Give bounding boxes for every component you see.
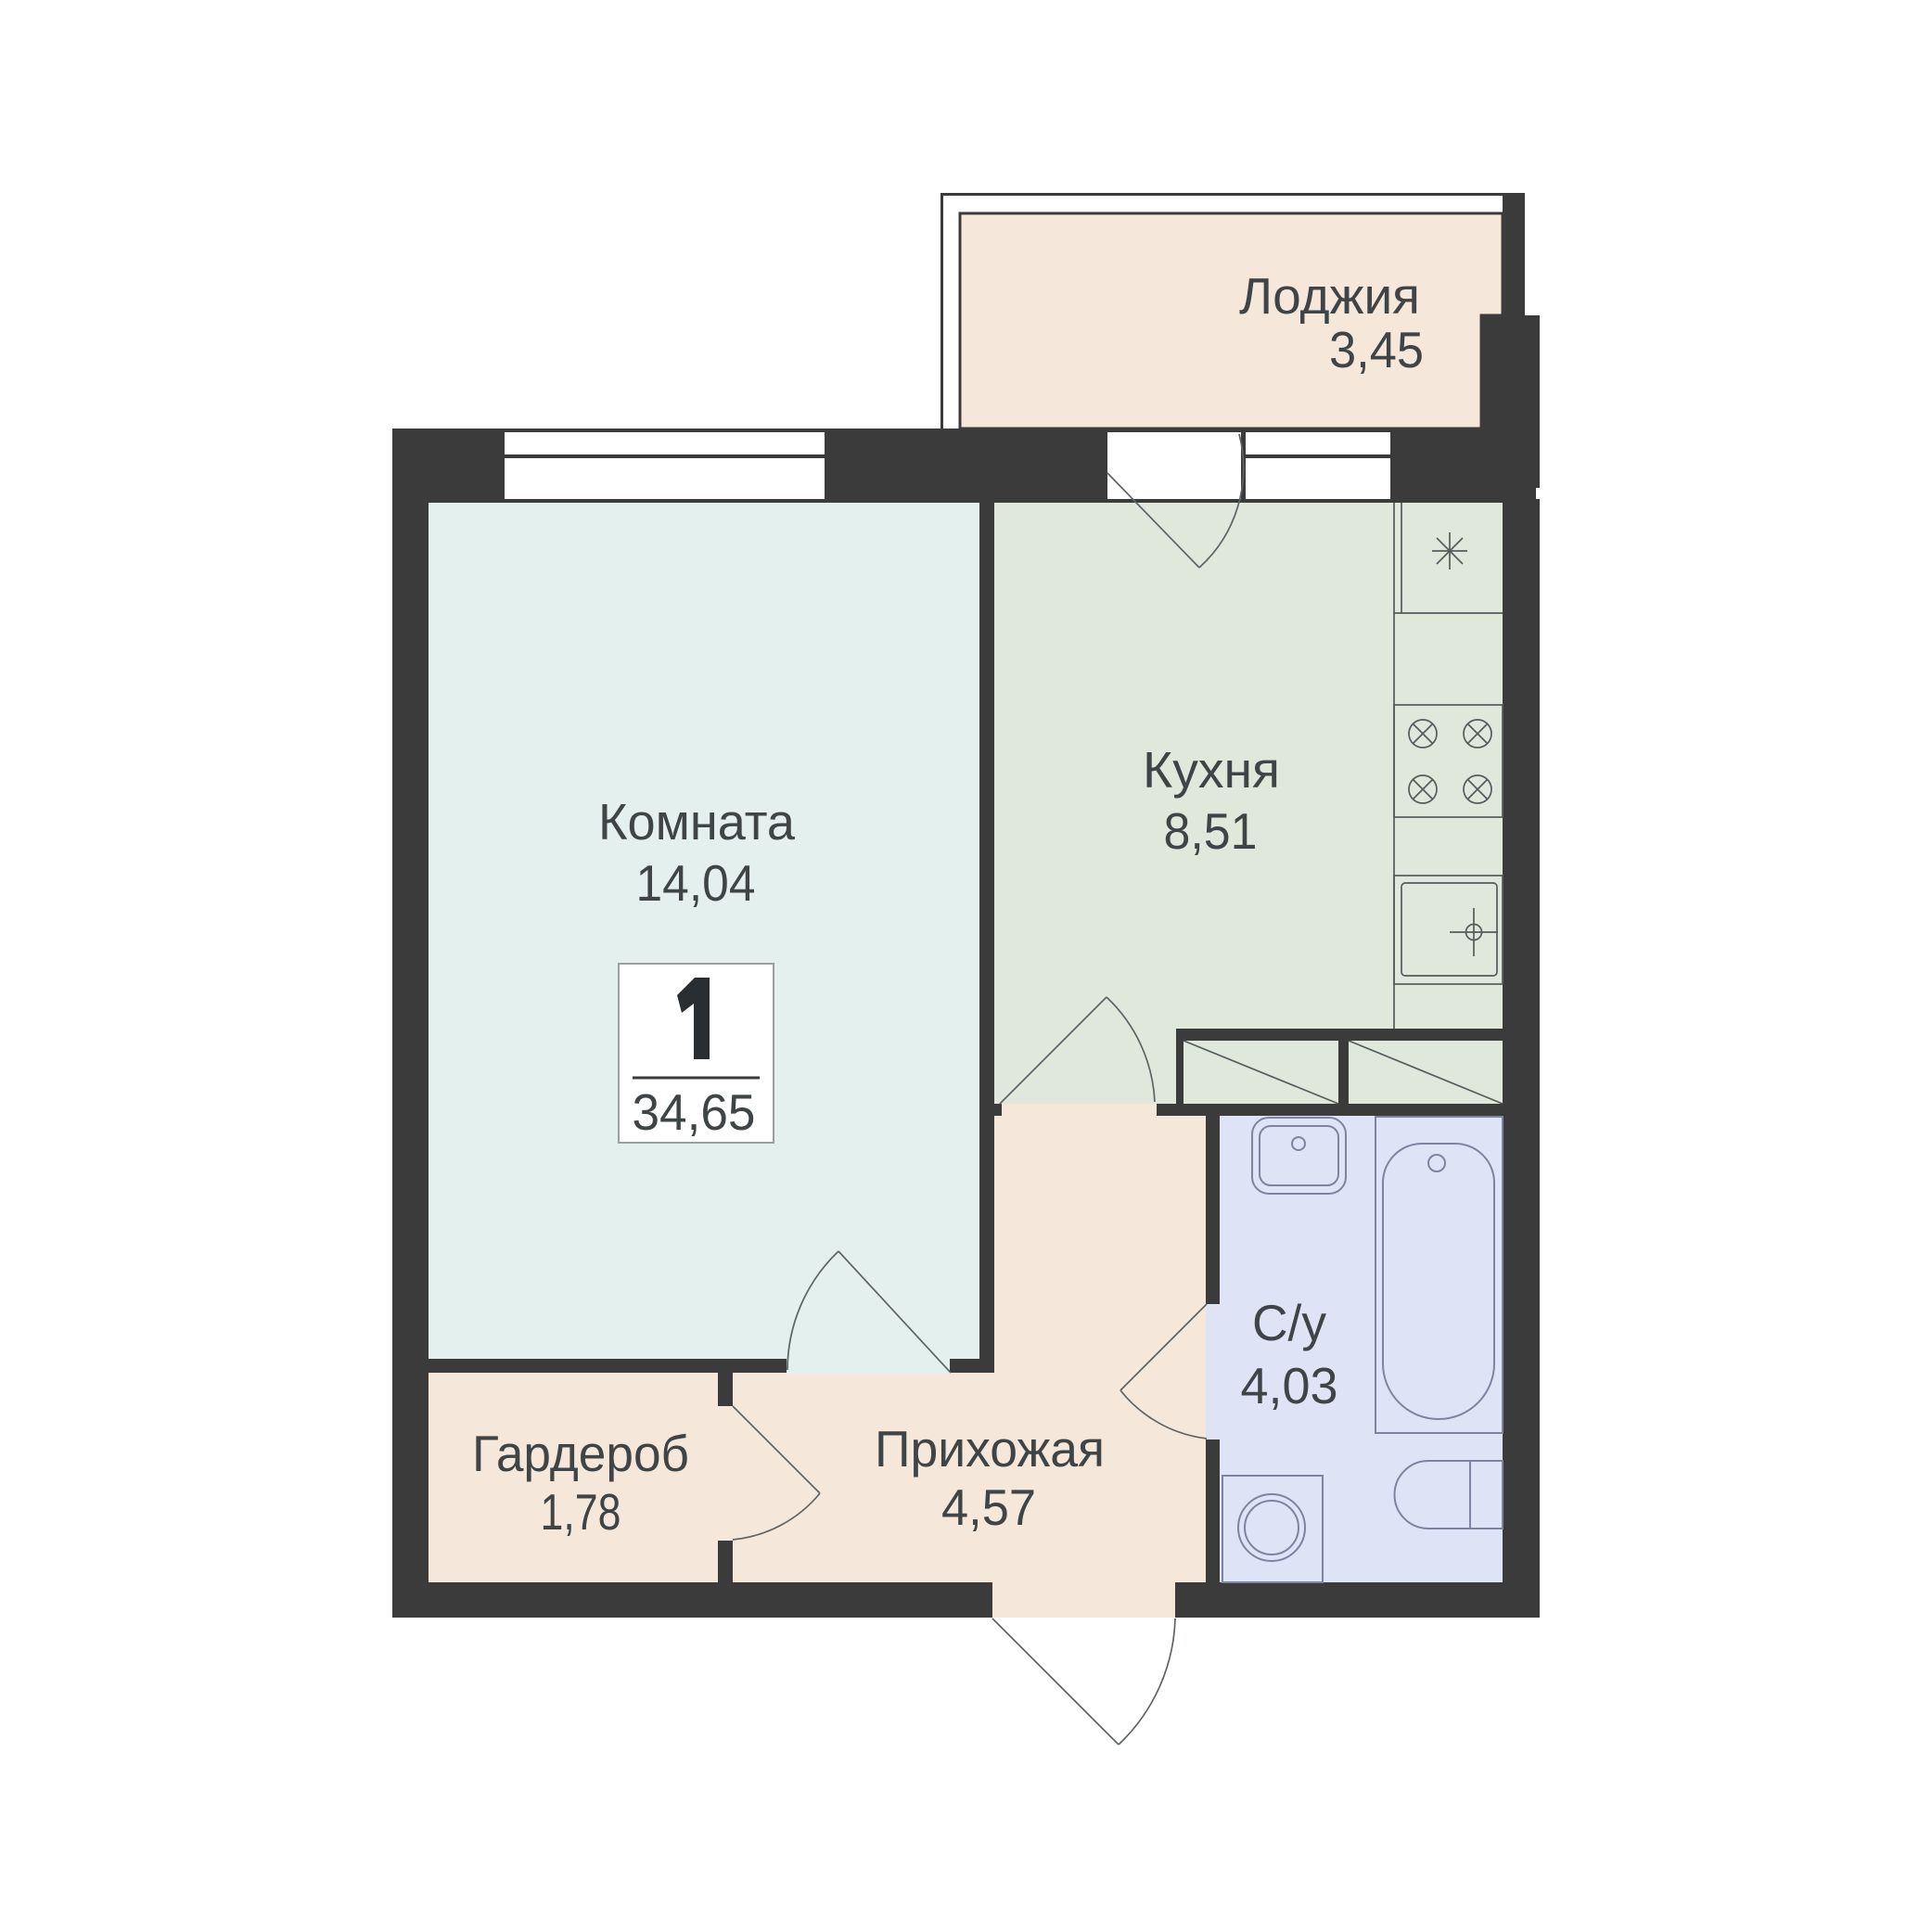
svg-text:3,45: 3,45 — [1329, 321, 1424, 378]
svg-text:Лоджия: Лоджия — [1239, 267, 1420, 325]
svg-text:Комната: Комната — [598, 793, 795, 851]
svg-text:Гардероб: Гардероб — [472, 1425, 689, 1482]
svg-text:Прихожая: Прихожая — [875, 1420, 1105, 1478]
svg-text:34,65: 34,65 — [633, 1083, 756, 1141]
svg-text:8,51: 8,51 — [1164, 802, 1258, 860]
svg-text:Кухня: Кухня — [1143, 741, 1280, 799]
svg-text:4,57: 4,57 — [941, 1478, 1036, 1536]
svg-text:14,04: 14,04 — [636, 854, 756, 912]
svg-text:4,03: 4,03 — [1241, 1357, 1338, 1414]
svg-text:С/у: С/у — [1252, 1294, 1326, 1351]
svg-text:1,78: 1,78 — [541, 1483, 621, 1541]
